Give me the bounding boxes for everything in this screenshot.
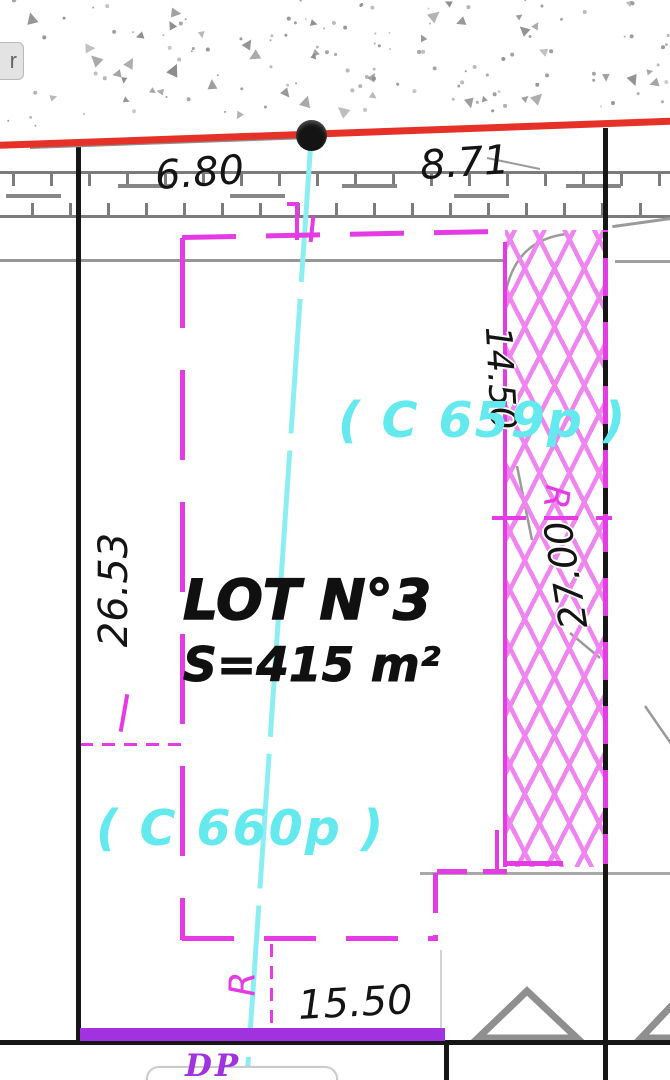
edge-toolbar-button-label: r — [10, 48, 17, 74]
vertex-handle[interactable] — [296, 120, 327, 151]
cadastral-plan-canvas: ▲▲▲▲▲▲▲▲▲▲▲▲▲▲▲▲▲▲▲▲▲▲▲▲▲▲▲▲▲▲▲▲▲▲▲▲▲▲▲▲… — [0, 0, 670, 1080]
lot-title: LOT N°3 — [183, 568, 431, 632]
dim-street-left: 6.80 — [154, 147, 246, 199]
dim-south-side: 15.50 — [297, 977, 414, 1029]
radius-marker-lower: R — [223, 971, 264, 996]
boundary-marker-tick — [295, 202, 299, 240]
edge-toolbar-button[interactable]: r — [0, 42, 24, 80]
parcel-label-660: ( C 660p ) — [96, 800, 385, 857]
lot-boundary-step-top — [437, 869, 507, 874]
property-line-east-top — [603, 128, 608, 232]
lot-boundary-east-step — [433, 873, 438, 939]
boundary-marker-tick — [287, 202, 299, 206]
property-line-east-bottom — [603, 864, 608, 1042]
south-stub-line — [603, 1045, 608, 1080]
lot-boundary-south — [182, 936, 438, 941]
dim-west-side: 26.53 — [91, 533, 137, 648]
lot-area: S=415 m² — [183, 638, 440, 693]
dim-street-right: 8.71 — [419, 137, 511, 189]
crosshatch-bottom-edge — [505, 861, 563, 866]
parcel-label-659: ( C 659p ) — [338, 392, 627, 449]
crosshatch-inner-dashed-line — [492, 516, 612, 520]
public-domain-label: DP — [185, 1048, 241, 1080]
building-roof-triangle — [641, 1001, 670, 1038]
inner-division-dashed — [80, 743, 182, 746]
south-stub-line — [444, 1045, 449, 1080]
crosshatch-corner-tick — [495, 830, 499, 873]
public-domain-bar — [80, 1028, 445, 1041]
property-line-east-dashed — [603, 232, 608, 865]
property-line-west — [76, 146, 81, 1042]
radius-marker-upper: R — [535, 483, 578, 511]
building-roof-triangle — [478, 991, 577, 1038]
bottom-panel[interactable] — [146, 1066, 338, 1080]
slope-mark — [645, 706, 670, 748]
